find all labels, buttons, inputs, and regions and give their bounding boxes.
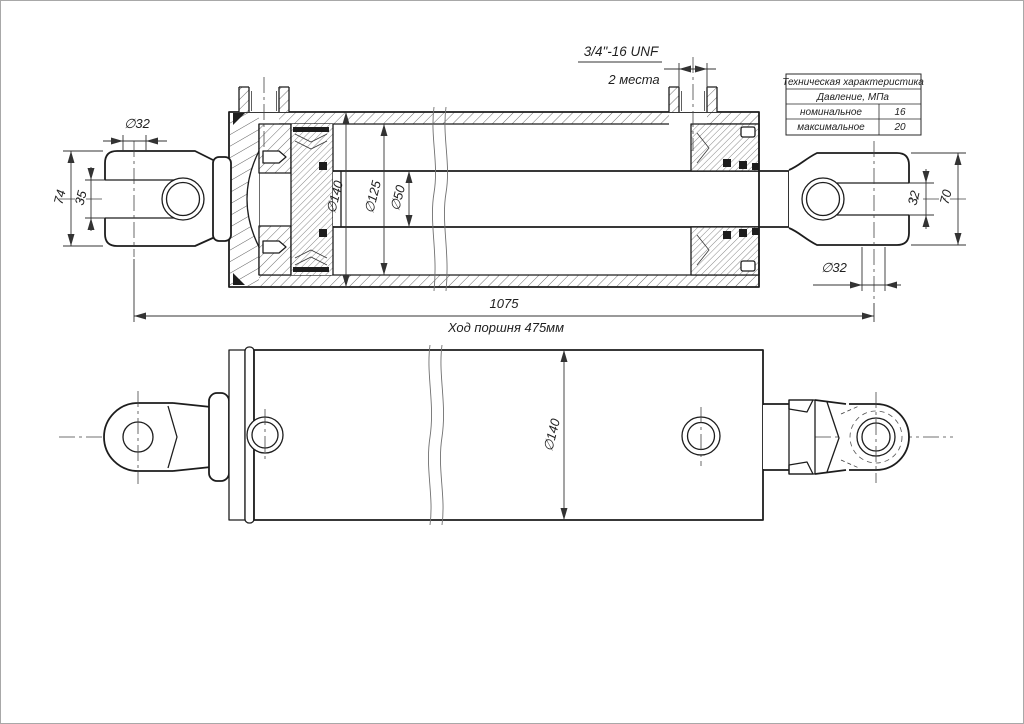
wiper-seal xyxy=(752,228,759,235)
table-row-value: 20 xyxy=(893,122,906,133)
thread-places-label: 2 места xyxy=(607,72,659,87)
gland-seal xyxy=(739,161,747,169)
eye-collar xyxy=(213,157,231,241)
table-row-label: номинальное xyxy=(800,107,862,118)
dim-clevis-width-left: 74 xyxy=(51,188,69,206)
rod-eye-right xyxy=(789,141,909,301)
table-row-value: 16 xyxy=(894,107,906,118)
table-subtitle: Давление, МПа xyxy=(816,92,889,103)
dim-clevis-width-right: 70 xyxy=(937,187,955,205)
technical-drawing: 74 35 ∅32 ∅140 ∅125 ∅50 32 70 xyxy=(1,1,1024,724)
stroke-note: Ход поршня 475мм xyxy=(447,320,564,335)
table-title: Техническая характеристика xyxy=(782,77,924,88)
rod-eye-left xyxy=(105,141,231,257)
wiper-seal xyxy=(752,163,759,170)
plan-eye-left xyxy=(104,391,211,484)
gland-seal xyxy=(723,159,731,167)
dim-overall-length: 1075 xyxy=(490,296,520,311)
drawing-page: 74 35 ∅32 ∅140 ∅125 ∅50 32 70 xyxy=(0,0,1024,724)
rod-o-ring xyxy=(319,162,327,170)
thread-spec-label: 3/4"-16 UNF xyxy=(584,44,659,59)
thread-callout: 3/4"-16 UNF 2 места xyxy=(578,44,716,88)
table-row-label: максимальное xyxy=(797,122,865,133)
rod-o-ring xyxy=(319,229,327,237)
dim-slot-width-left: 35 xyxy=(72,188,90,206)
spec-table: Техническая характеристика Давление, МПа… xyxy=(782,74,924,135)
cap-plate xyxy=(229,350,245,520)
gland-seal xyxy=(723,231,731,239)
plan-collar xyxy=(209,393,229,481)
dim-eye-bore-left: ∅32 xyxy=(124,116,151,131)
gland-seal xyxy=(739,229,747,237)
rear-cap xyxy=(230,113,259,286)
dim-slot-width-right: 32 xyxy=(905,188,923,206)
plan-rod-right xyxy=(763,392,909,483)
plan-view xyxy=(59,345,953,525)
dim-eye-bore-right: ∅32 xyxy=(821,260,848,275)
